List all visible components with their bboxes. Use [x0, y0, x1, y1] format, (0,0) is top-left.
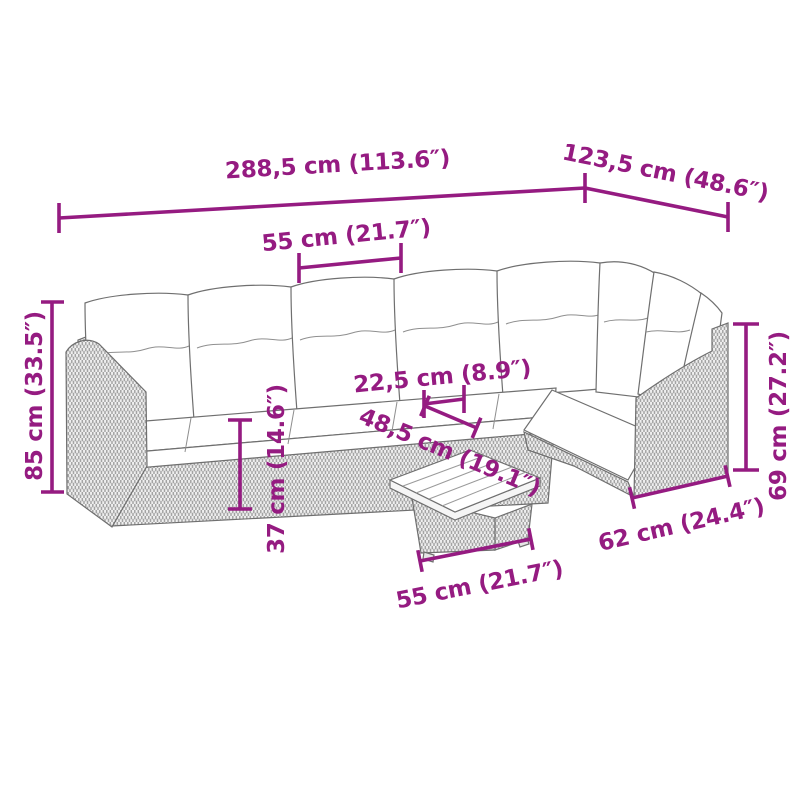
dimension-overall-width: 288,5 cm (113.6″): [59, 146, 585, 233]
dimension-overall-height: 85 cm (33.5″): [22, 302, 64, 492]
dimension-overall-depth: 123,5 cm (48.6″): [560, 140, 771, 232]
dimension-label: 55 cm (21.7″): [261, 215, 433, 257]
dimension-label: 69 cm (27.2″): [766, 331, 792, 501]
dimension-label: 123,5 cm (48.6″): [560, 140, 771, 207]
sofa-illustration: [66, 261, 728, 562]
dimension-seat-width: 55 cm (21.7″): [261, 215, 433, 283]
furniture-dimension-diagram: 288,5 cm (113.6″) 123,5 cm (48.6″) 55 cm…: [0, 0, 800, 800]
dimension-diagram-canvas: 288,5 cm (113.6″) 123,5 cm (48.6″) 55 cm…: [0, 0, 800, 800]
dimension-label: 62 cm (24.4″): [596, 494, 767, 557]
dimension-label: 288,5 cm (113.6″): [224, 146, 450, 185]
dimension-label: 85 cm (33.5″): [22, 311, 48, 481]
dimension-label: 37 cm (14.6″): [264, 384, 290, 554]
dimension-armrest-height: 69 cm (27.2″): [733, 324, 792, 501]
